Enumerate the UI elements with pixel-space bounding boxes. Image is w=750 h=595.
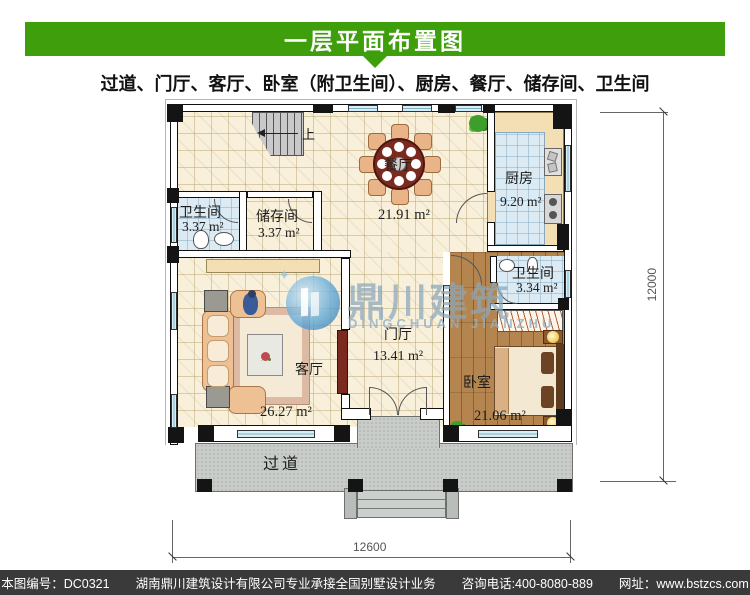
hall-label: 门厅 — [384, 324, 412, 344]
column — [443, 425, 459, 442]
stove-burner — [549, 198, 557, 206]
porch-column — [197, 479, 212, 492]
porch-column — [557, 479, 572, 492]
sofa-cushion — [207, 365, 229, 387]
tv-cabinet — [337, 330, 348, 394]
banner-pointer-icon — [363, 56, 387, 68]
window — [348, 105, 378, 112]
wall-kitchen-bottom — [487, 245, 564, 252]
bath2-area: 3.34 m² — [516, 280, 558, 296]
stove-burner — [549, 211, 557, 219]
column — [438, 104, 455, 113]
bedside-lamp — [547, 331, 559, 343]
kitchen-label: 厨房 — [505, 168, 533, 188]
hall-area: 13.41 m² — [373, 349, 423, 365]
column — [558, 298, 569, 310]
window — [237, 430, 315, 438]
window — [478, 430, 538, 438]
porch-column — [443, 479, 458, 492]
living-area: 26.27 m² — [260, 404, 312, 421]
wall-bath2-bottom — [490, 303, 564, 310]
column — [483, 104, 495, 113]
bedroom-label: 卧室 — [463, 372, 491, 392]
page-title: 一层平面布置图 — [284, 22, 466, 56]
dim-bottom-value: 12600 — [353, 540, 386, 554]
dim-bottom-line — [172, 557, 571, 558]
bed-headboard — [556, 344, 564, 418]
wall-storage-top — [247, 191, 313, 198]
sofa-cushion — [207, 340, 229, 362]
column — [167, 246, 179, 263]
sofa-cushion — [207, 315, 229, 337]
dining-chair — [423, 156, 441, 173]
title-banner: 一层平面布置图 — [25, 22, 725, 56]
dim-right-line — [663, 112, 664, 482]
website: 网址：www.bstzcs.com — [619, 573, 749, 592]
floor-plan-page: 一层平面布置图 过道、门厅、客厅、卧室（附卫生间）、厨房、餐厅、储存间、卫生间 — [0, 0, 750, 595]
column — [313, 104, 333, 113]
wall-bath1-top — [177, 191, 240, 198]
coffee-table-flowers — [261, 352, 270, 361]
window — [455, 105, 482, 112]
living-cabinet — [206, 259, 320, 273]
column — [334, 425, 350, 442]
column — [168, 427, 184, 443]
pillow — [541, 352, 554, 374]
wardrobe — [497, 310, 563, 332]
column — [167, 188, 179, 203]
porch-label: 过道 — [263, 450, 301, 474]
dining-area: 21.91 m² — [378, 207, 430, 224]
column — [198, 425, 214, 442]
stair-direction-arrow-icon — [257, 129, 265, 137]
drawing-code: 本图编号：DC0321 — [1, 573, 109, 592]
kitchen-floor — [495, 132, 545, 245]
footer-bar: 本图编号：DC0321 湖南鼎川建筑设计有限公司专业承接全国别墅设计业务 咨询电… — [0, 570, 750, 595]
side-table-bottom — [206, 386, 230, 408]
storage-area: 3.37 m² — [258, 225, 300, 241]
bath1-area: 3.37 m² — [182, 219, 224, 235]
bedroom-area: 21.06 m² — [474, 408, 526, 425]
window — [171, 292, 177, 330]
porch-entry-extension — [357, 416, 440, 448]
column — [553, 104, 572, 129]
company-name: 湖南鼎川建筑设计有限公司专业承接全国别墅设计业务 — [136, 573, 436, 592]
room-list-subtitle: 过道、门厅、客厅、卧室（附卫生间）、厨房、餐厅、储存间、卫生间 — [0, 70, 750, 96]
column — [557, 224, 569, 250]
wall-tv-upper — [341, 258, 350, 330]
dining-room-label: 餐厅 — [384, 155, 412, 175]
porch-area — [195, 443, 573, 492]
window — [171, 394, 177, 428]
phone-number: 咨询电话:400-8080-889 — [462, 573, 593, 592]
bed-foot-blanket — [495, 348, 509, 414]
step-rail-left — [344, 488, 357, 519]
stairs-up-label: 上 — [302, 124, 315, 143]
pillow — [541, 386, 554, 408]
dim-right-value: 12000 — [645, 268, 659, 301]
window — [565, 270, 571, 298]
wall-bath1-storage — [239, 191, 247, 251]
window — [171, 207, 177, 243]
wall-bath2-left — [490, 256, 497, 283]
window — [565, 145, 571, 192]
kitchen-sink-basin — [547, 162, 558, 173]
column — [167, 104, 183, 122]
wall-entry-left — [341, 408, 371, 420]
storage-label: 储存间 — [256, 206, 298, 226]
wall-storage-right — [313, 191, 322, 251]
wall-hall-bedroom — [443, 285, 450, 427]
side-table-top — [204, 290, 228, 312]
window — [402, 105, 432, 112]
step-rail-right — [446, 488, 459, 519]
wall-kitchen-left-upper — [487, 112, 495, 192]
living-label: 客厅 — [295, 359, 323, 379]
person-head — [248, 290, 256, 298]
entry-steps — [357, 490, 446, 518]
dim-right-extension-top — [600, 112, 668, 113]
porch-column — [348, 479, 363, 492]
wall-living-top — [170, 250, 351, 258]
column — [556, 409, 572, 425]
plant — [469, 115, 487, 132]
dining-chair — [391, 188, 409, 205]
stair-direction-line — [264, 133, 298, 134]
kitchen-area: 9.20 m² — [500, 194, 542, 210]
